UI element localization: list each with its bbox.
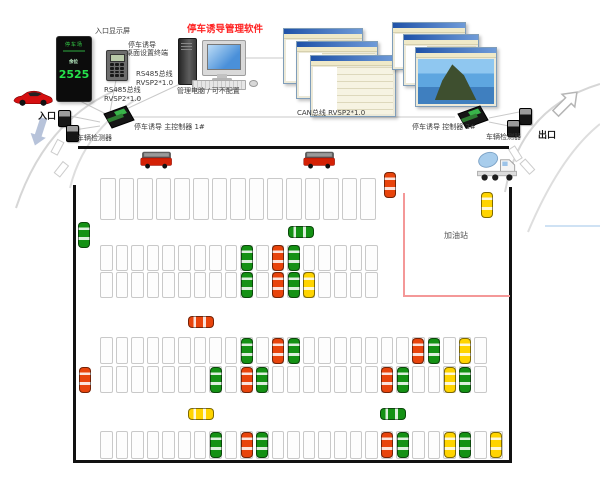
parked-car-red [412,338,424,364]
vehicle-detector-device [519,108,532,125]
parking-space [178,337,191,364]
parking-space [178,431,191,459]
parking-space [147,272,160,298]
desktop-setting-terminal [106,50,128,81]
parking-space [162,431,175,459]
parking-space [225,366,238,393]
parking-space [305,178,321,220]
can-bus-label: CAN总线 RVSP2*1.0 [297,109,365,117]
parking-space [318,272,331,298]
parking-space [194,245,207,271]
parking-space [272,431,285,459]
parked-car-red [381,367,393,393]
parking-space [334,431,347,459]
parked-car-green [397,432,409,458]
parking-space [194,337,207,364]
parking-space [209,245,222,271]
parking-space [428,366,441,393]
pc-monitor [202,40,246,76]
moving-car-yellow [481,192,493,218]
parking-space [350,245,363,271]
parking-space [428,431,441,459]
main-controller-label: 停车诱导 主控制器 1# [134,123,205,131]
moving-car-red [79,367,91,393]
secondary-controller-label: 停车诱导 控制器 2# [412,123,476,131]
rs485-bus-label2-line1: RS485总线 [104,86,141,94]
parking-space [100,431,113,459]
parked-car-green [241,338,253,364]
parking-space [162,272,175,298]
parking-space [334,337,347,364]
parked-car-red [272,272,284,298]
parked-car-green [397,367,409,393]
parking-space [286,178,302,220]
parking-space [256,245,269,271]
software-window-photo [415,47,497,107]
parking-space [256,272,269,298]
parking-space [178,366,191,393]
rs485-bus-label-line1: RS485总线 [136,70,173,78]
parking-space [194,272,207,298]
bus-icon [140,150,173,170]
display-screen-title: 停车场 [57,41,91,48]
terminal-label-line1: 停车诱导 [128,41,156,49]
pc-tower [178,38,197,85]
parking-space [147,337,160,364]
parking-space [174,178,190,220]
parking-space [194,431,207,459]
parking-space [350,366,363,393]
parking-space [412,366,425,393]
parking-space [365,366,378,393]
moving-car-green [380,408,406,420]
moving-car-green [78,222,90,248]
software-title: 停车诱导管理软件 [187,25,263,36]
parked-car-red [241,367,253,393]
parking-space [303,366,316,393]
parking-space [267,178,283,220]
parking-space [474,366,487,393]
parking-space [318,431,331,459]
gas-station-boundary-vertical [403,193,405,297]
parking-space [365,431,378,459]
parked-car-red [241,432,253,458]
parking-space [100,366,113,393]
entrance-display-label: 入口显示屏 [95,27,130,35]
parked-car-red [272,245,284,271]
display-count-value: 2525 [59,68,90,81]
entrance-car-icon [12,88,54,108]
parking-space [342,178,358,220]
parking-space [162,337,175,364]
moving-car-red [384,172,396,198]
parked-car-green [288,338,300,364]
entrance-sign: 入口 [38,112,56,122]
lot-border-left [73,185,76,462]
parked-car-green [459,432,471,458]
parking-space [119,178,135,220]
parking-space [303,337,316,364]
parking-space [381,337,394,364]
parking-space [131,366,144,393]
scenery-photo [418,59,494,104]
vehicle-detector-label-left: 车辆检测器 [77,134,112,142]
management-pc-label: 管理电脑 / 可不配置 [177,87,240,95]
parked-car-green [256,367,268,393]
parking-space [396,337,409,364]
parking-space [212,178,228,220]
parking-space [209,272,222,298]
gas-station-label: 加油站 [444,231,468,240]
parking-space [334,366,347,393]
parking-space [412,431,425,459]
parking-space [194,366,207,393]
main-controller-device [98,104,138,134]
parking-space [334,245,347,271]
parked-car-green [241,272,253,298]
parking-space [474,337,487,364]
parking-space [178,245,191,271]
parked-car-green [459,367,471,393]
parking-space [116,272,129,298]
parking-space [225,272,238,298]
parked-car-yellow [459,338,471,364]
moving-car-green [288,226,314,238]
parking-space [131,272,144,298]
parking-space [116,337,129,364]
parking-space [365,245,378,271]
parking-space [350,431,363,459]
software-window [310,55,396,117]
parking-space [147,431,160,459]
entrance-led-display: 停车场 余位2525 [56,36,92,102]
parking-space [360,178,376,220]
gas-station-boundary-bottom [403,295,510,297]
parked-car-green [288,245,300,271]
parking-space [323,178,339,220]
parking-space [209,337,222,364]
parking-space [116,431,129,459]
parking-space [443,337,456,364]
parking-space [365,272,378,298]
parking-space [147,366,160,393]
parking-space [131,245,144,271]
parked-car-yellow [490,432,502,458]
parking-space [100,245,113,271]
rs485-bus-label-line2: RVSP2*1.0 [136,79,173,87]
parking-space [303,431,316,459]
pc-mouse [249,80,258,87]
bus-icon [303,150,336,170]
display-free-count: 余位2525 [57,55,91,81]
display-sub-line [63,50,85,52]
parking-space [287,431,300,459]
parking-space [116,366,129,393]
parking-space [256,337,269,364]
parking-space [272,366,285,393]
parking-space [225,431,238,459]
parked-car-red [272,338,284,364]
exit-sign: 出口 [538,131,556,141]
parking-space [230,178,246,220]
parked-car-red [381,432,393,458]
lot-border-top [78,146,509,149]
parked-car-yellow [303,272,315,298]
parking-space [334,272,347,298]
parking-space [156,178,172,220]
parked-car-green [210,367,222,393]
parked-car-green [288,272,300,298]
parking-space [318,337,331,364]
display-count-prefix: 余位 [69,60,78,65]
parking-space [318,366,331,393]
parking-space [225,245,238,271]
parking-space [303,245,316,271]
mixer-truck-icon [474,148,520,184]
parking-space [100,337,113,364]
parking-space [365,337,378,364]
parking-space [225,337,238,364]
parked-car-green [241,245,253,271]
lot-border-right [509,187,512,462]
parking-space [100,178,116,220]
rs485-bus-label2-line2: RVSP2*1.0 [104,95,141,103]
parked-car-yellow [444,432,456,458]
parking-space [100,272,113,298]
parking-guidance-system-diagram: 停车场 余位2525 [0,0,600,500]
parking-space [162,245,175,271]
parking-space [318,245,331,271]
parking-space [178,272,191,298]
parking-space [287,366,300,393]
parked-car-green [428,338,440,364]
parking-space [131,431,144,459]
parking-space [193,178,209,220]
parking-space [474,431,487,459]
parking-space [137,178,153,220]
parked-car-green [256,432,268,458]
parked-car-green [210,432,222,458]
terminal-screen [110,54,125,62]
terminal-keypad [110,63,124,77]
parking-space [350,272,363,298]
pc-monitor-screen [207,44,241,70]
parking-space [350,337,363,364]
lot-border-bottom [73,460,512,463]
vehicle-detector-label-right: 车辆检测器 [486,133,521,141]
parking-space [249,178,265,220]
terminal-label-line2: 桌面设置终端 [126,49,168,57]
parking-space [131,337,144,364]
moving-car-red [188,316,214,328]
parking-space [116,245,129,271]
parking-space [147,245,160,271]
parked-car-yellow [444,367,456,393]
moving-car-yellow [188,408,214,420]
parking-space [162,366,175,393]
